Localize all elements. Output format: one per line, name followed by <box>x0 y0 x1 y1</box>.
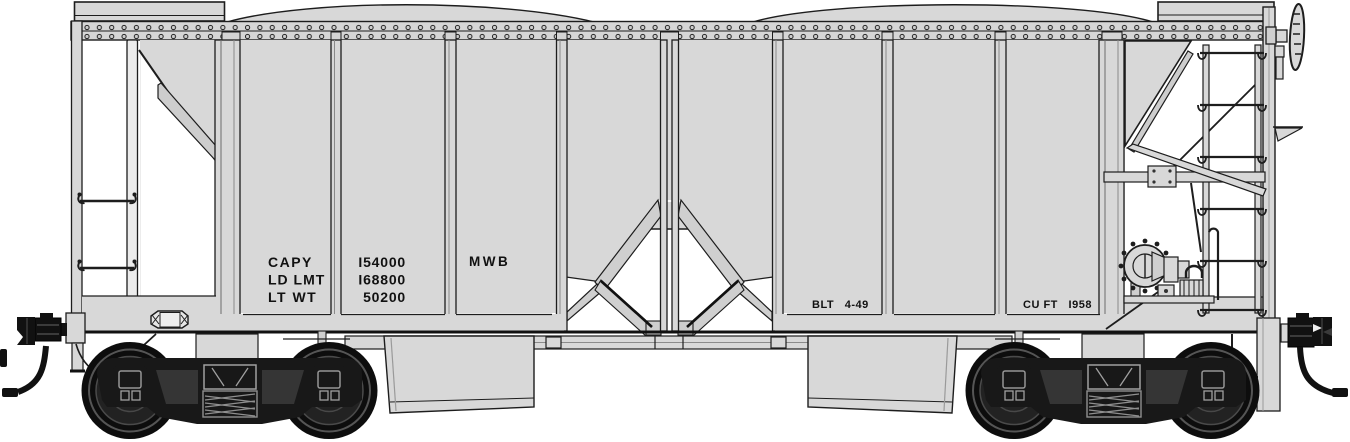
svg-text:I54000: I54000 <box>358 254 406 270</box>
svg-text:CU FT I958: CU FT I958 <box>1023 299 1092 311</box>
svg-text:I68800: I68800 <box>358 272 406 288</box>
svg-text:LT WT: LT WT <box>268 289 317 305</box>
svg-text:LD LMT: LD LMT <box>268 272 325 288</box>
svg-text:50200: 50200 <box>363 289 406 305</box>
svg-text:CAPY: CAPY <box>268 254 313 270</box>
svg-text:MWB: MWB <box>469 254 510 269</box>
svg-text:BLT 4-49: BLT 4-49 <box>812 299 869 311</box>
